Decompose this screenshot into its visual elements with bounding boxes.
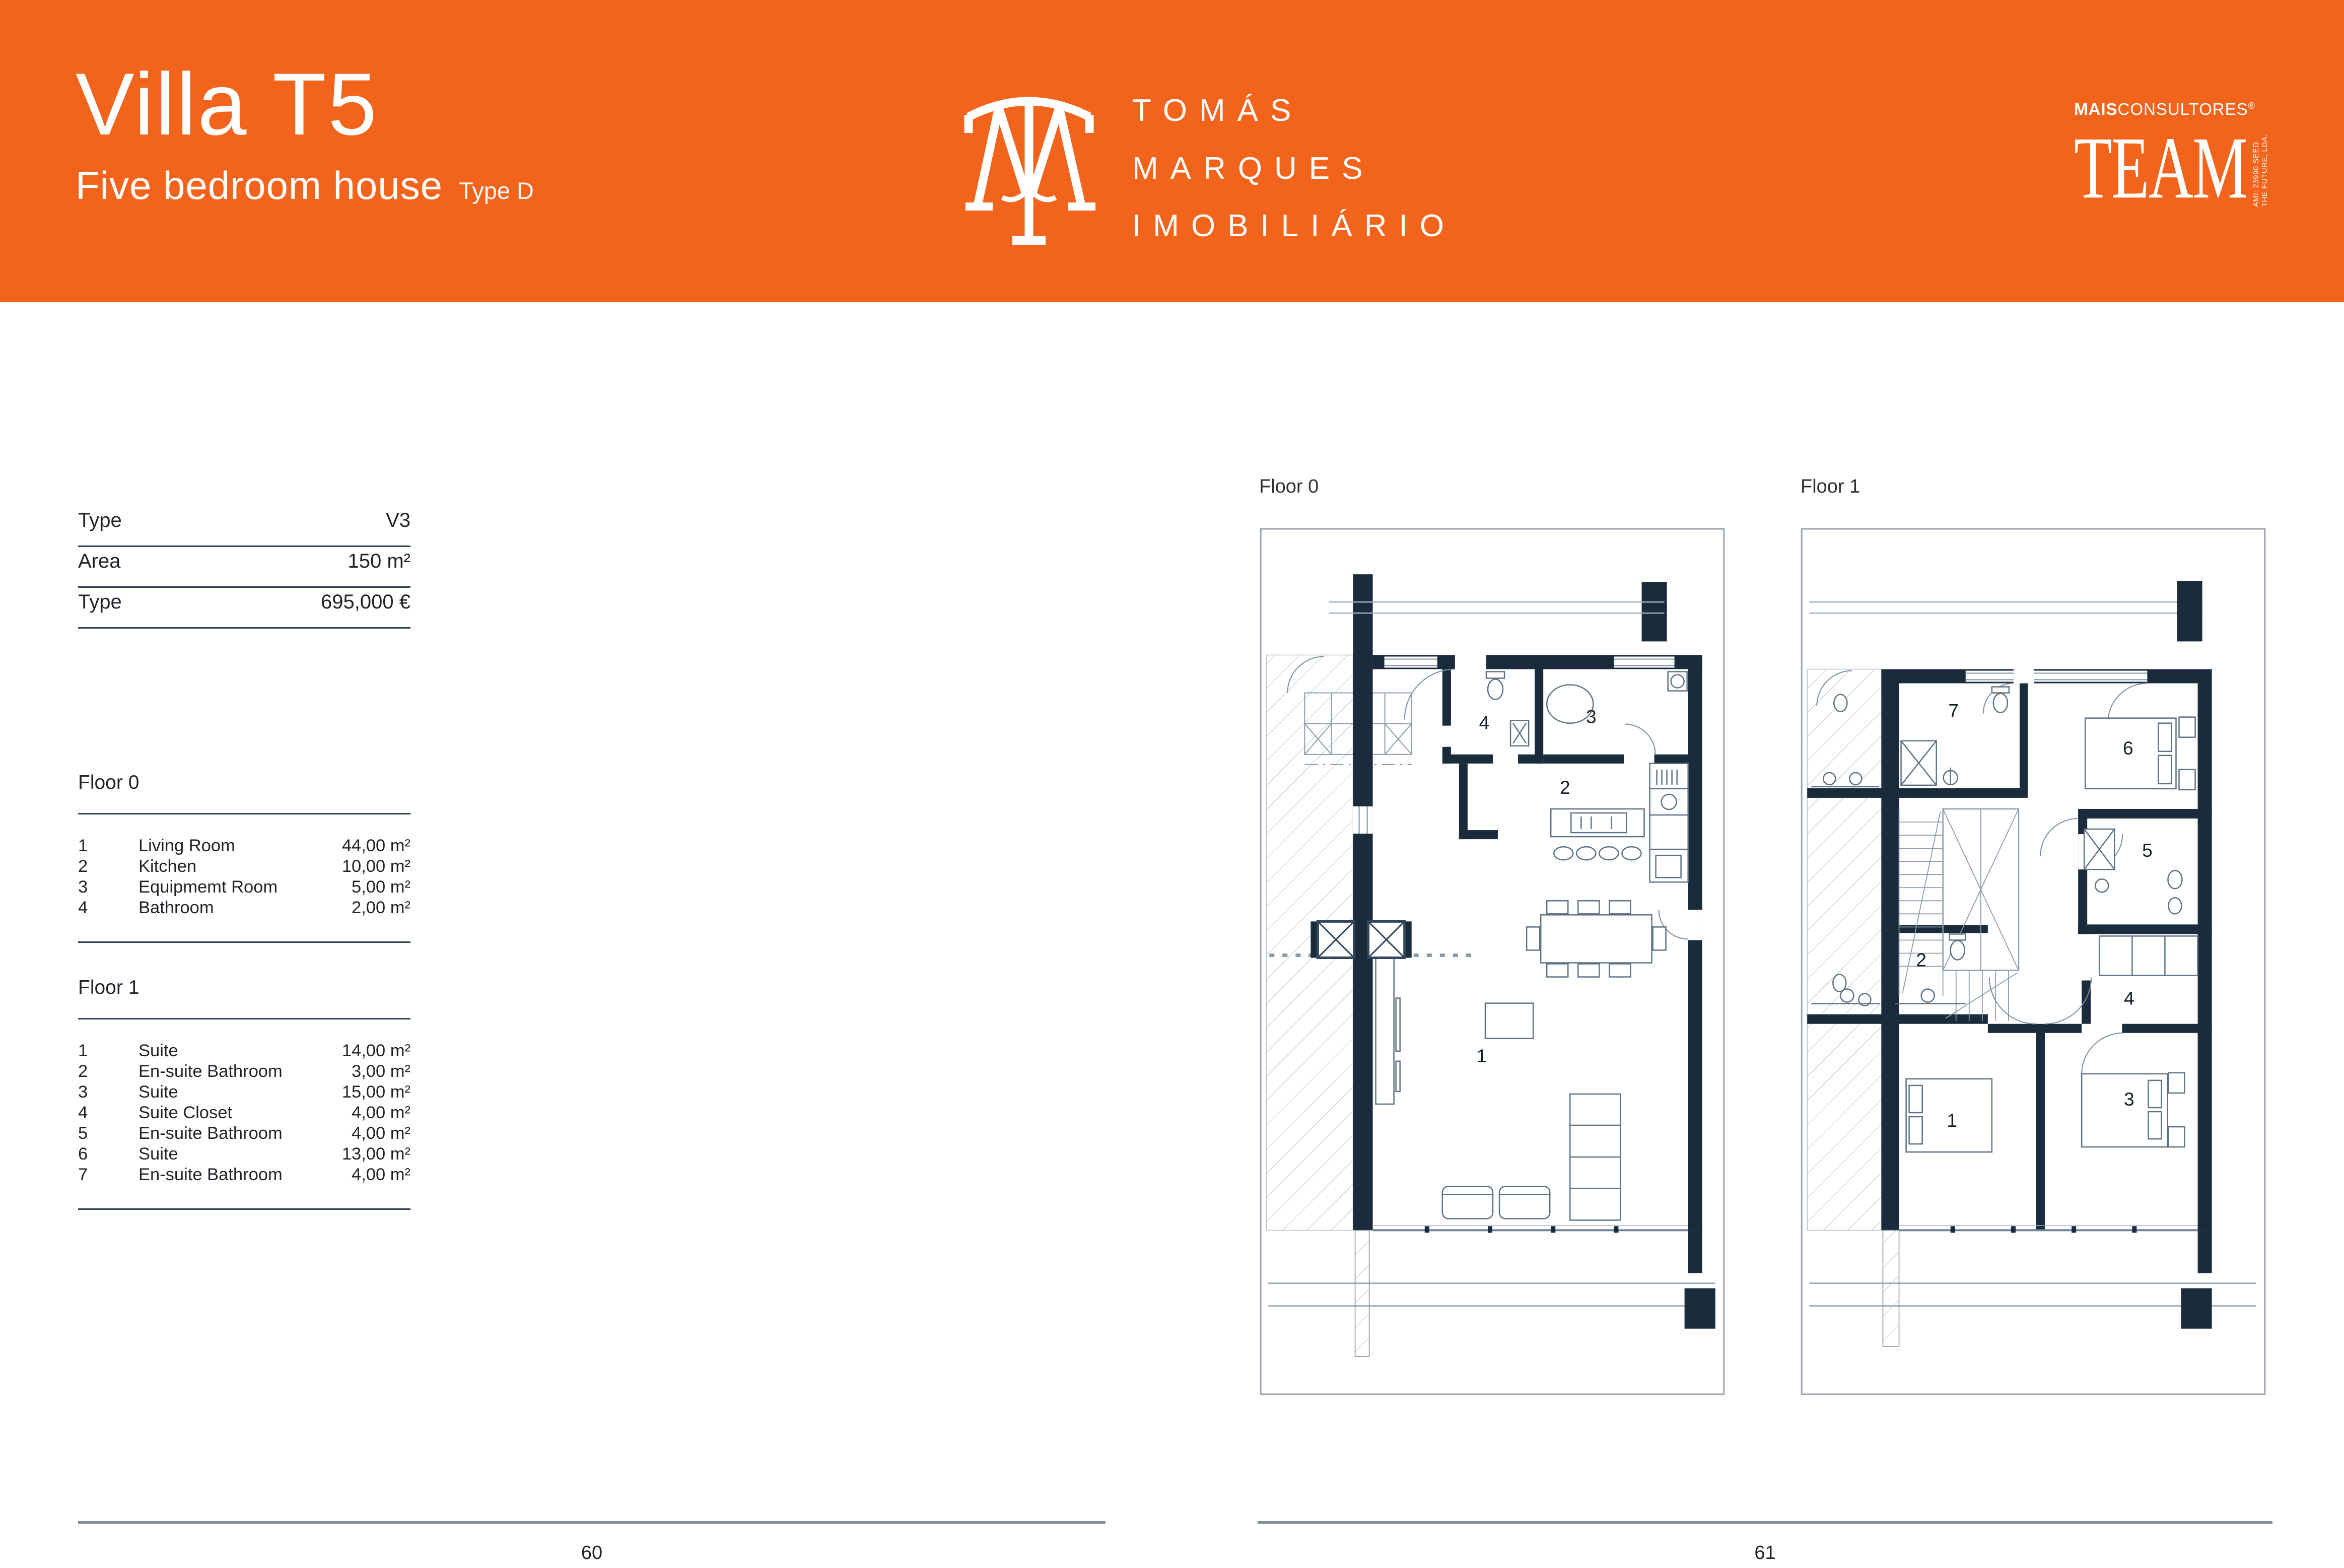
floor0-plan: 1 2 3 4 [1257, 526, 1728, 1397]
room-label-7: 7 [1948, 700, 1959, 721]
floor1-rows: 1Suite14,00 m² 2En-suite Bathroom3,00 m²… [78, 1041, 410, 1185]
coffee-table [1485, 1003, 1533, 1039]
team-wordmark-row: TEAM AMI: 23990 SEED THE FUTURE, LDA. [2074, 124, 2276, 199]
room-name: En-suite Bathroom [139, 1061, 300, 1082]
spec-label: Type [78, 591, 122, 613]
room-label-3: 3 [2124, 1088, 2134, 1110]
spec-table: Type V3 Area 150 m² Type 695,000 € [78, 506, 410, 629]
room-number: 7 [78, 1165, 139, 1185]
room-number: 3 [78, 1082, 139, 1103]
terrace-hatch [1807, 669, 1881, 1230]
room-name: Suite [139, 1144, 300, 1165]
room-area: 15,00 m² [300, 1082, 410, 1103]
registered-mark: ® [2248, 101, 2255, 111]
room-area: 4,00 m² [300, 1103, 410, 1123]
room-number: 3 [78, 877, 139, 898]
room-number: 4 [78, 1103, 139, 1123]
room-name: En-suite Bathroom [139, 1165, 300, 1185]
toilet-icon [1992, 687, 2009, 713]
wall-stub-hatched [1355, 1230, 1369, 1356]
footer-rule-left [78, 1521, 1106, 1524]
room-label-2: 2 [1916, 949, 1926, 971]
room-row: 3Suite15,00 m² [78, 1082, 410, 1103]
floor1-plan-title: Floor 1 [1801, 476, 1860, 498]
shelf-unit [1570, 1094, 1620, 1220]
room-label-5: 5 [2142, 840, 2153, 861]
spec-row-price: Type 695,000 € [78, 588, 410, 629]
room-row: 6Suite13,00 m² [78, 1144, 410, 1165]
room-row: 3Equipmemt Room5,00 m² [78, 877, 410, 898]
room-number: 6 [78, 1144, 139, 1165]
room-row: 4Suite Closet4,00 m² [78, 1103, 410, 1123]
type-label: Type D [459, 177, 534, 204]
floor1-plan: 7 6 5 2 4 1 3 [1798, 526, 2268, 1397]
title-block: Villa T5 Five bedroom house Type D [76, 56, 534, 209]
room-row: 4Bathroom2,00 m² [78, 898, 410, 918]
spec-row-type: Type V3 [78, 506, 410, 547]
room-row: 1Living Room44,00 m² [78, 836, 410, 856]
room-name: En-suite Bathroom [139, 1123, 300, 1144]
tm-monogram-icon [953, 71, 1105, 267]
brochure-page: Villa T5 Five bedroom house Type D [0, 0, 2344, 1568]
room-name: Living Room [139, 836, 300, 856]
header-band: Villa T5 Five bedroom house Type D [0, 0, 2344, 302]
team-wordmark: TEAM [2074, 124, 2247, 213]
room-area: 13,00 m² [300, 1144, 410, 1165]
partner-name: MAISCONSULTORES® [2074, 100, 2276, 119]
divider [78, 941, 410, 943]
room-area: 5,00 m² [300, 877, 410, 898]
room-label-1: 1 [1947, 1110, 1957, 1131]
room-row: 5En-suite Bathroom4,00 m² [78, 1123, 410, 1144]
brand-text: TOMÁS MARQUES IMOBILIÁRIO [1132, 82, 1456, 255]
spec-value: 150 m² [348, 550, 411, 573]
room-area: 4,00 m² [300, 1123, 410, 1144]
page-subtitle: Five bedroom house [76, 163, 443, 209]
closet-room4 [2099, 936, 2197, 975]
kitchen-island [1551, 809, 1644, 837]
room-label-3: 3 [1586, 706, 1597, 727]
floor0-room-list: Floor 0 1Living Room44,00 m² 2Kitchen10,… [78, 772, 410, 943]
partner-name-rest: CONSULTORES [2118, 100, 2248, 118]
floor0-plan-title: Floor 0 [1259, 476, 1319, 498]
spec-label: Area [78, 550, 121, 573]
partner-name-bold: MAIS [2074, 100, 2118, 118]
wall-stub-hatched [1883, 1230, 1899, 1346]
room-row: 2En-suite Bathroom3,00 m² [78, 1061, 410, 1082]
room-area: 2,00 m² [300, 898, 410, 918]
room-label-6: 6 [2123, 737, 2133, 759]
room-name: Equipmemt Room [139, 877, 300, 898]
spec-row-area: Area 150 m² [78, 547, 410, 588]
divider [78, 1208, 410, 1210]
footer-rule-right [1258, 1521, 2272, 1524]
toilet-icon [1486, 672, 1504, 700]
room-area: 4,00 m² [300, 1165, 410, 1185]
floor0-plan-drawing: 1 2 3 4 [1257, 526, 1728, 1397]
floor0-list-title: Floor 0 [78, 772, 410, 794]
floor1-list-title: Floor 1 [78, 977, 410, 999]
brand-line-3: IMOBILIÁRIO [1132, 197, 1456, 255]
brand-line-1: TOMÁS [1132, 82, 1456, 140]
room-number: 2 [78, 856, 139, 877]
room-name: Kitchen [139, 856, 300, 877]
room-row: 1Suite14,00 m² [78, 1041, 410, 1061]
room-number: 1 [78, 1041, 139, 1061]
room-number: 1 [78, 836, 139, 856]
team-side-text: AMI: 23990 SEED THE FUTURE, LDA. [2252, 124, 2269, 207]
partner-logo: MAISCONSULTORES® TEAM AMI: 23990 SEED TH… [2074, 100, 2276, 199]
divider [78, 813, 410, 814]
spec-label: Type [78, 509, 122, 532]
room-name: Bathroom [139, 898, 300, 918]
divider [78, 1018, 410, 1019]
room-name: Suite [139, 1041, 300, 1061]
brand-line-2: MARQUES [1132, 140, 1456, 198]
room-row: 7En-suite Bathroom4,00 m² [78, 1165, 410, 1185]
agency-logo: TOMÁS MARQUES IMOBILIÁRIO [953, 71, 1456, 267]
room-label-2: 2 [1560, 777, 1570, 798]
page-title: Villa T5 [76, 56, 534, 154]
room-number: 5 [78, 1123, 139, 1144]
sink-icon [1510, 721, 1529, 746]
room-label-4: 4 [2124, 988, 2134, 1009]
kitchen-counter [1650, 764, 1688, 882]
room-area: 14,00 m² [300, 1041, 410, 1061]
room-number: 4 [78, 898, 139, 918]
room-name: Suite Closet [139, 1103, 300, 1123]
corner-basin-icon [1668, 672, 1687, 691]
room-label-4: 4 [1479, 712, 1490, 733]
spec-value: V3 [386, 509, 410, 532]
room-label-1: 1 [1477, 1045, 1487, 1066]
room-area: 3,00 m² [300, 1061, 410, 1082]
room-area: 10,00 m² [300, 856, 410, 877]
floor1-room-list: Floor 1 1Suite14,00 m² 2En-suite Bathroo… [78, 977, 410, 1210]
page-number-right: 61 [1258, 1542, 2272, 1564]
room-number: 2 [78, 1061, 139, 1082]
room-row: 2Kitchen10,00 m² [78, 856, 410, 877]
shower-icon [1901, 741, 1937, 785]
room-area: 44,00 m² [300, 836, 410, 856]
room-name: Suite [139, 1082, 300, 1103]
spec-value: 695,000 € [321, 591, 410, 613]
floor1-plan-drawing: 7 6 5 2 4 1 3 [1798, 526, 2268, 1397]
subtitle-row: Five bedroom house Type D [76, 163, 534, 209]
page-number-left: 60 [78, 1542, 1106, 1564]
floor0-rows: 1Living Room44,00 m² 2Kitchen10,00 m² 3E… [78, 836, 410, 918]
